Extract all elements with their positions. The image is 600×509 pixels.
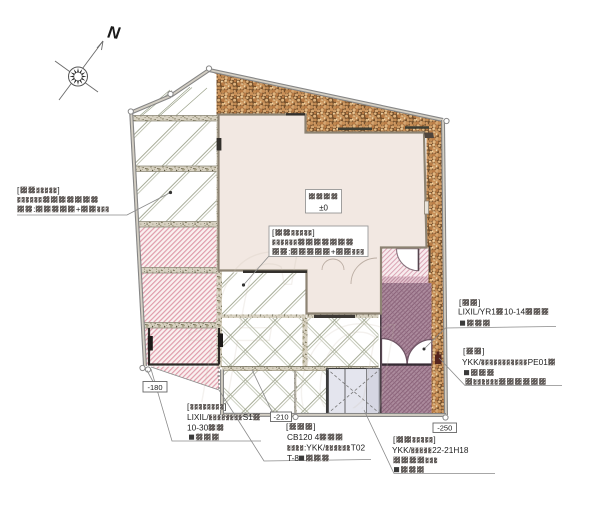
svg-text:-210: -210	[273, 412, 288, 421]
svg-text:]: ]	[482, 346, 484, 356]
svg-text:]: ]	[57, 185, 59, 195]
svg-text::YKK/: :YKK/	[304, 443, 326, 453]
svg-text:+: +	[76, 204, 81, 214]
svg-text:T02: T02	[351, 443, 366, 453]
svg-text:YKK/: YKK/	[462, 357, 482, 367]
svg-text:LIXIL/YR1: LIXIL/YR1	[458, 307, 496, 317]
svg-text:10-30: 10-30	[187, 423, 209, 433]
svg-text:-250: -250	[437, 423, 452, 432]
svg-text:-180: -180	[147, 383, 162, 392]
svg-text:T-8: T-8	[287, 453, 299, 463]
svg-text::: :	[288, 247, 290, 257]
svg-text:S1: S1	[243, 412, 254, 422]
svg-text:]: ]	[312, 228, 314, 238]
svg-text:]: ]	[433, 435, 435, 445]
svg-text::: :	[33, 204, 35, 214]
svg-text:YKK/: YKK/	[392, 445, 412, 455]
svg-text:LIXIL/: LIXIL/	[187, 412, 209, 422]
svg-text:]: ]	[224, 402, 226, 412]
svg-text:22-21H18: 22-21H18	[432, 445, 469, 455]
svg-text:]: ]	[313, 422, 315, 432]
svg-text:10-14: 10-14	[504, 307, 526, 317]
svg-text:CB120 4: CB120 4	[287, 432, 320, 442]
svg-text:±0: ±0	[319, 204, 328, 213]
svg-text:+: +	[331, 247, 336, 257]
svg-text:PE01: PE01	[528, 357, 549, 367]
